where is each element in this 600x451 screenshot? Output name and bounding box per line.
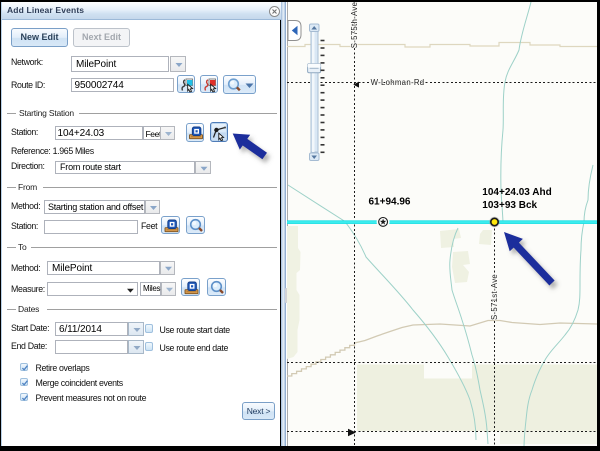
svg-text:103+93 Bck: 103+93 Bck <box>482 200 537 211</box>
svg-text:W-Lohman-Rd: W-Lohman-Rd <box>371 78 425 87</box>
svg-text:104+24.03 Ahd: 104+24.03 Ahd <box>482 187 551 198</box>
svg-text:61+94.96: 61+94.96 <box>369 197 411 208</box>
svg-text:S-575th-Ave: S-575th-Ave <box>350 2 359 48</box>
svg-text:S-571st-Ave: S-571st-Ave <box>490 274 499 320</box>
